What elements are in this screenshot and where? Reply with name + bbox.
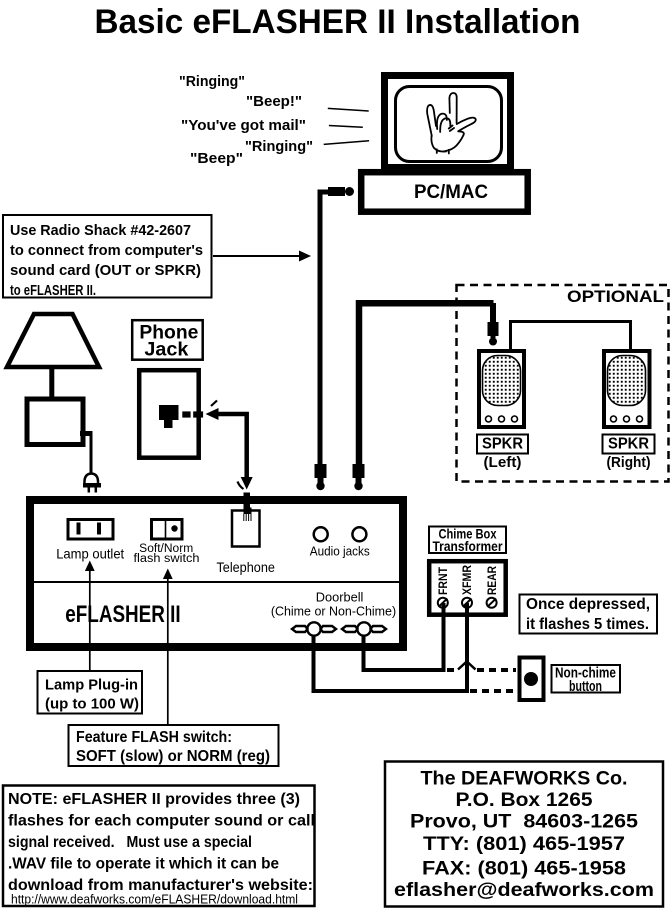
svg-text:button: button [569, 679, 602, 695]
svg-text:Use Radio Shack #42-2607: Use Radio Shack #42-2607 [10, 222, 191, 239]
svg-text:"Beep": "Beep" [190, 150, 243, 167]
svg-text:to eFLASHER II.: to eFLASHER II. [10, 282, 96, 299]
svg-text:SPKR: SPKR [482, 436, 523, 453]
svg-text:"Ringing": "Ringing" [179, 73, 245, 90]
svg-text:Lamp Plug-in: Lamp Plug-in [45, 677, 138, 694]
svg-text:SOFT (slow) or NORM (reg): SOFT (slow) or NORM (reg) [76, 748, 270, 765]
svg-text:OPTIONAL: OPTIONAL [567, 287, 664, 306]
svg-text:"Beep!": "Beep!" [246, 93, 302, 110]
svg-text:flashes for each computer soun: flashes for each computer sound or call [8, 813, 315, 830]
svg-text:eFLASHER II: eFLASHER II [65, 601, 180, 628]
svg-text:.WAV file to operate it which: .WAV file to operate it which it can be [8, 856, 279, 873]
svg-text:"Ringing": "Ringing" [245, 138, 313, 155]
svg-text:SPKR: SPKR [608, 436, 649, 453]
svg-text:FRNT: FRNT [436, 566, 450, 595]
svg-text:Telephone: Telephone [216, 559, 275, 575]
svg-text:Feature FLASH switch:: Feature FLASH switch: [76, 729, 232, 746]
svg-text:Provo, UT 84603-1265: Provo, UT 84603-1265 [410, 811, 638, 833]
svg-text:(up to 100 W): (up to 100 W) [45, 696, 139, 713]
svg-text:signal received. Must use a: signal received. Must use a special [8, 834, 252, 851]
svg-text:NOTE: eFLASHER II provides thr: NOTE: eFLASHER II provides three (3) [8, 791, 300, 808]
svg-text:(Chime or Non-Chime): (Chime or Non-Chime) [271, 605, 396, 619]
svg-text:it flashes 5 times.: it flashes 5 times. [526, 616, 649, 633]
svg-text:P.O. Box 1265: P.O. Box 1265 [456, 789, 593, 811]
svg-text:"You've got mail": "You've got mail" [181, 117, 306, 134]
svg-text:Jack: Jack [144, 340, 188, 361]
svg-text:Transformer: Transformer [433, 539, 504, 554]
svg-text:PC/MAC: PC/MAC [414, 182, 488, 203]
svg-text:eflasher@deafworks.com: eflasher@deafworks.com [394, 879, 654, 901]
svg-text:The DEAFWORKS Co.: The DEAFWORKS Co. [421, 768, 628, 790]
svg-text:http://www.deafworks.com/eFLAS: http://www.deafworks.com/eFLASHER/downlo… [11, 893, 298, 907]
svg-text:FAX: (801) 465-1958: FAX: (801) 465-1958 [422, 858, 626, 880]
svg-text:TTY: (801) 465-1957: TTY: (801) 465-1957 [423, 833, 625, 855]
svg-text:Audio jacks: Audio jacks [310, 545, 370, 559]
svg-text:sound card (OUT or SPKR): sound card (OUT or SPKR) [10, 262, 201, 279]
svg-text:to connect from computer's: to connect from computer's [10, 242, 203, 259]
svg-text:download from manufacturer's w: download from manufacturer's website: [8, 877, 313, 894]
svg-text:Doorbell: Doorbell [316, 591, 364, 605]
svg-text:Once depressed,: Once depressed, [526, 596, 650, 613]
svg-text:Lamp outlet: Lamp outlet [56, 545, 124, 561]
svg-text:XFMR: XFMR [460, 565, 474, 595]
svg-text:REAR: REAR [485, 566, 499, 595]
svg-text:(Left): (Left) [484, 454, 522, 471]
svg-text:flash switch: flash switch [134, 553, 200, 565]
svg-text:Basic eFLASHER II Installation: Basic eFLASHER II Installation [95, 3, 581, 41]
svg-text:(Right): (Right) [607, 454, 651, 471]
